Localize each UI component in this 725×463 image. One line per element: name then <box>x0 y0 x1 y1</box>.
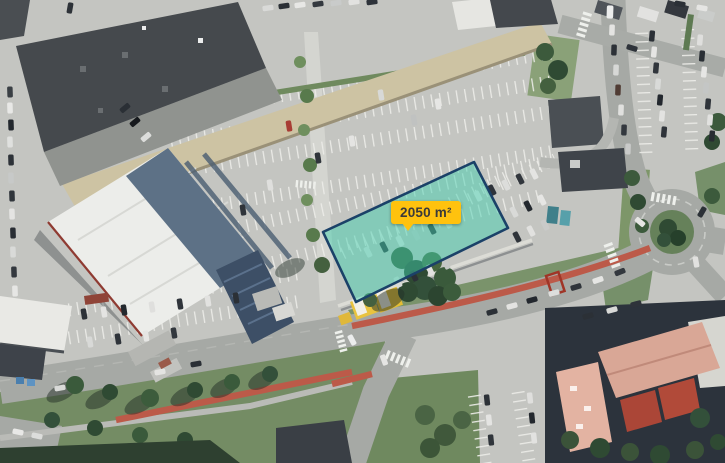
area-measurement-label[interactable]: 2050 m² <box>391 201 461 224</box>
area-value-text: 2050 m² <box>400 205 452 220</box>
aerial-imagery <box>0 0 725 463</box>
label-pointer <box>402 223 414 231</box>
map-viewport[interactable]: 2050 m² <box>0 0 725 463</box>
